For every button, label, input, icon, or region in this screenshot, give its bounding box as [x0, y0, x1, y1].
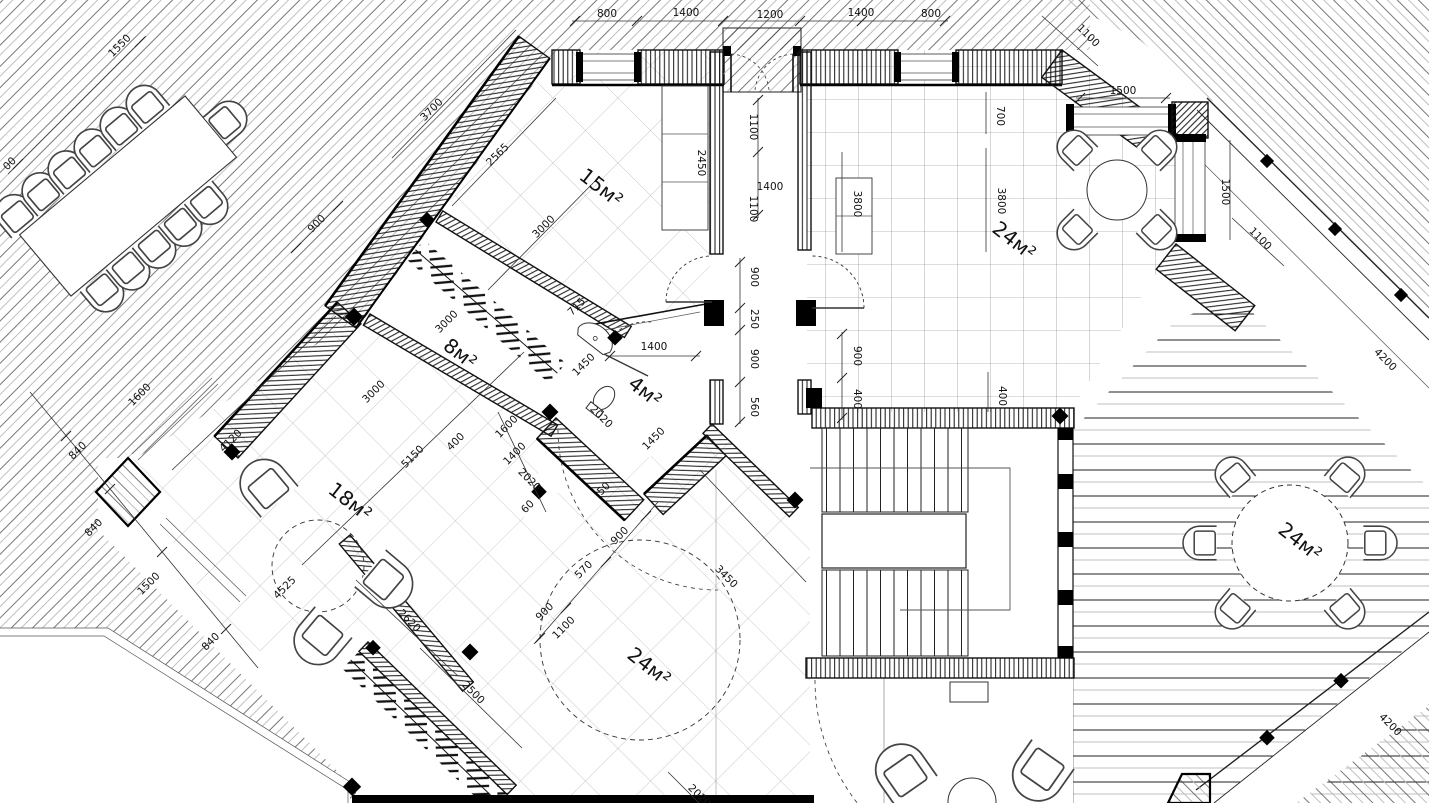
dim-label: 1500 [1219, 179, 1231, 206]
top-wall-right-with-window [800, 50, 1062, 85]
dim-label: 2450 [695, 150, 707, 177]
dim-label: 900 [748, 349, 760, 369]
bottom-cut-wall [352, 795, 814, 803]
dim-label: 1400 [641, 341, 668, 353]
dim-label: 560 [748, 397, 760, 417]
dim-label: 1400 [757, 181, 784, 193]
stair-base-box [950, 682, 988, 702]
dim-label: 900 [851, 346, 863, 366]
dim-label: 1200 [757, 9, 784, 21]
entry-porch [723, 28, 801, 92]
dim-label: 800 [597, 8, 617, 20]
dim-label: 400 [996, 386, 1008, 406]
dim-label: 400 [851, 389, 863, 409]
dim-label: 1100 [747, 114, 759, 141]
floor-plan-canvas: 800 1400 1200 1400 800 1100 1500 1500 11… [0, 0, 1429, 803]
vestibule-floor [722, 52, 800, 432]
dim-label: 250 [748, 309, 760, 329]
dim-label: 3800 [995, 188, 1007, 215]
dim-label: 1400 [673, 7, 700, 19]
dim-label: 3800 [851, 191, 863, 218]
dim-label: 1100 [747, 196, 759, 223]
dim-label: 1400 [848, 7, 875, 19]
top-wall-left-with-window [552, 50, 724, 85]
floor-plan-drawing: 800 1400 1200 1400 800 1100 1500 1500 11… [0, 0, 1429, 803]
dim-label: 1500 [1110, 85, 1137, 97]
dim-label: 800 [921, 8, 941, 20]
dim-label: 900 [748, 267, 760, 287]
dim-label: 700 [994, 106, 1006, 126]
